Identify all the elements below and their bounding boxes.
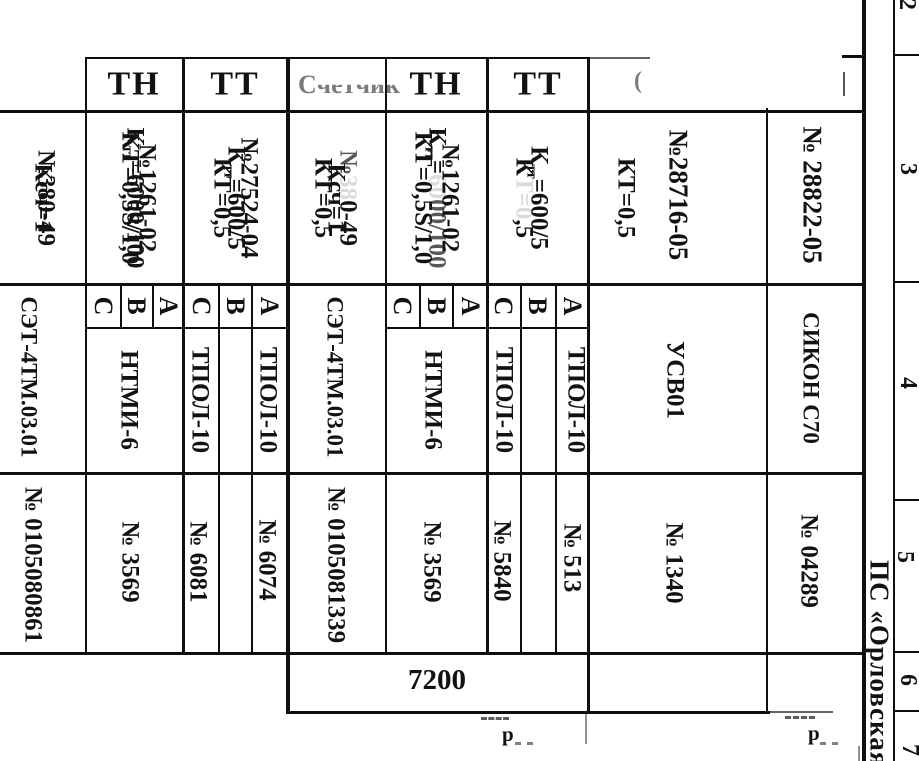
header-meter-2-visible: С [298,70,316,99]
station-title: ПС «Орловская» [863,560,894,761]
tt1-cert: №1261-02 [133,144,162,252]
faded-line-remnant [585,714,587,744]
cell-tn1-serial: № 3569 [116,521,145,602]
phase-cell: В [522,297,552,314]
zone-number: 7 [895,744,919,756]
zone-number: 4 [893,377,919,389]
cell-tt2-serial-a: № 513 [558,524,587,593]
cell-meter2-model: СЭТ-4ТМ.03.01 [321,297,348,458]
meter2-cert: №27524-04 [235,132,264,264]
grid-line [287,711,770,714]
cell-usv-reg: №28716-05 [662,130,693,261]
grid-line [218,285,220,653]
phase-cell: С [488,297,518,316]
cell-meter1-model: СЭТ-4ТМ.03.01 [15,297,42,458]
grid-line [520,285,522,653]
scanned-sheet: ТН ТТ Счетчик ТН ТТ ( КТ=0,5S/1,0 Ксч=1 … [0,0,919,761]
grid-line [842,55,864,58]
cell-tn2-model: НТМИ-6 [419,350,448,450]
header-tn-1: ТН [107,65,160,102]
grid-line [766,108,768,714]
grid-line [770,711,833,713]
header-tt-2: ТТ [513,65,562,102]
grid-line [0,472,864,475]
grid-line [86,327,287,329]
header-meter-2: Счетчик [272,42,400,128]
tn1-cert: №380-49 [32,127,61,268]
faded-line-remnant [843,72,845,96]
cell-tt2-model-c: ТПОЛ-10 [490,347,519,453]
phase-cell: С [186,297,216,316]
phase-cell: В [220,297,250,314]
cell-meter1-serial: № 0105080861 [19,487,48,643]
cell-tt2-specs: КТ=0,5 Ктт=600/5 №1261-02 [378,144,699,252]
zone-tick [894,710,919,712]
faded-r-mark: р [808,721,820,746]
cell-sikon-model: СИКОН С70 [797,312,824,444]
phase-cell: С [387,297,417,316]
faded-header-mark: ( [634,68,642,95]
grid-line [0,110,864,113]
header-tt-1: ТТ [210,65,259,102]
grid-line [555,285,557,653]
phase-cell: В [121,297,151,314]
faded-dash [481,717,509,720]
phase-cell: В [421,297,451,314]
cell-tt1-serial-c: № 6081 [184,521,213,602]
zone-number: 3 [893,163,919,175]
zone-number: 6 [893,674,919,686]
zone-tick [894,54,919,56]
faded-dash [820,742,838,745]
phase-cell: С [88,297,118,316]
grid-line [0,283,864,286]
header-tn-2: ТН [409,65,462,102]
cell-sikon-reg: № 28822-05 [796,126,827,263]
grid-line [588,57,650,59]
tt2-cert: №1261-02 [436,144,465,252]
phase-cell: А [153,297,183,316]
cell-tt1-model-a: ТПОЛ-10 [254,347,283,453]
zone-number: 2 [892,0,919,10]
cell-tt2-serial-c: № 5840 [488,520,517,601]
tn2-cert: №380-49 [334,127,363,268]
tt2-ratio: Ктт=600/5 [523,144,554,252]
cell-usv-model: УСВ01 [661,341,690,419]
cell-sikon-serial: № 04289 [795,514,824,608]
cell-tt2-model-a: ТПОЛ-10 [562,347,591,453]
cell-meter2-serial: № 0105081339 [322,487,351,643]
faded-dash [785,716,815,719]
phase-cell: А [254,297,284,316]
zone-tick [894,499,919,501]
dimension-label: 7200 [408,665,466,697]
grid-line [452,285,454,328]
cell-usv-serial: № 1340 [660,522,689,603]
phase-cell: А [557,297,587,316]
cell-tt1-model-c: ТПОЛ-10 [186,347,215,453]
cell-tn2-serial: № 3569 [418,521,447,602]
tt2-accuracy: КТ=0,5 [611,144,640,252]
cell-tn1-model: НТМИ-6 [115,350,144,450]
cell-tt1-serial-a: № 6074 [253,519,282,600]
faded-dash [515,742,533,745]
faded-r-mark: р [502,722,514,747]
zone-tick [894,651,919,653]
grid-line [0,652,864,655]
faded-line-remnant [858,746,860,761]
header-meter-2-faded: четчик [316,70,400,99]
zone-tick [894,281,919,283]
phase-cell: А [455,297,485,316]
